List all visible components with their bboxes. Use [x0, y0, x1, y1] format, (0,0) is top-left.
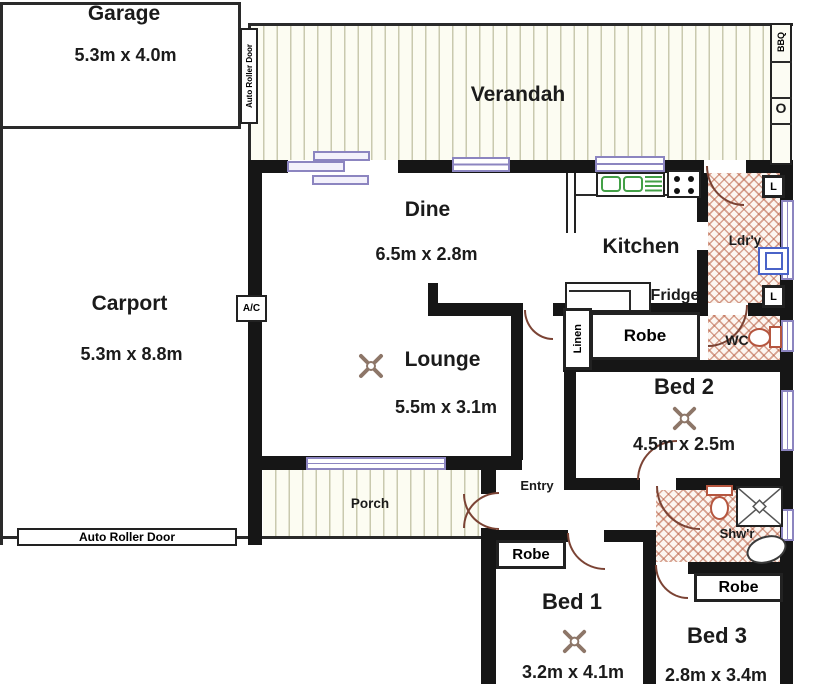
- linen-cupboard-bottom-label: L: [770, 291, 777, 303]
- verandah-name: Verandah: [448, 84, 588, 106]
- carport-dims: 5.3m x 8.8m: [68, 345, 195, 364]
- bath-toilet-bowl-icon: [710, 496, 729, 520]
- bed1-dims: 3.2m x 4.1m: [511, 663, 635, 682]
- bed2-dims: 4.5m x 2.5m: [622, 435, 746, 454]
- bed1-name: Bed 1: [528, 590, 616, 613]
- bed2-top-wall: [563, 360, 793, 372]
- sink-bowl-icon: [623, 176, 643, 192]
- wc-window: [781, 320, 794, 352]
- lounge-right-wall: [511, 310, 523, 460]
- robe-bed3-label: Robe: [719, 579, 759, 597]
- cooktop: [667, 170, 701, 198]
- laundry-name: Ldr'y: [718, 234, 772, 248]
- sink-bowl-icon: [601, 176, 621, 192]
- bed2-left-wall: [564, 366, 576, 478]
- lounge-dims: 5.5m x 3.1m: [383, 398, 509, 417]
- fridge-label: Fridge: [646, 288, 704, 305]
- auto-roller-door-vertical: Auto Roller Door: [240, 28, 258, 124]
- kitchen-bench-end-panel: [566, 173, 576, 233]
- bbq-label-cell: BBQ: [771, 25, 791, 59]
- bed2-bottom-wall-left: [564, 478, 640, 490]
- dine-dims: 6.5m x 2.8m: [363, 245, 490, 264]
- ac-unit-label: A/C: [243, 303, 260, 314]
- kitchen-name: Kitchen: [590, 236, 692, 258]
- wc-name: WC: [720, 333, 754, 348]
- entry-name: Entry: [512, 479, 562, 493]
- kitchen-window: [595, 156, 665, 172]
- cooktop-burner-icon: [674, 176, 680, 182]
- robe-bed1: Robe: [496, 540, 566, 569]
- garage-carport-divider: [0, 126, 241, 129]
- lounge-name: Lounge: [390, 349, 495, 371]
- laundry-tub-inner-icon: [765, 252, 783, 270]
- bed1-left-wall: [481, 528, 496, 684]
- garage-dims: 5.3m x 4.0m: [62, 46, 189, 65]
- sliding-door-panel: [313, 151, 370, 161]
- bed3-name: Bed 3: [673, 624, 761, 647]
- bbq-bench-divider: [770, 97, 792, 99]
- dine-lounge-wall: [428, 303, 523, 316]
- dine-window: [452, 157, 510, 172]
- verandah-top-line: [248, 23, 793, 26]
- linen-label: Linen: [572, 324, 584, 353]
- lounge-window: [306, 457, 446, 470]
- dine-name: Dine: [385, 199, 470, 221]
- left-boundary-line: [0, 2, 3, 545]
- fridge-recess-line: [569, 290, 629, 292]
- house-left-wall: [248, 160, 262, 545]
- bbq-label: BBQ: [776, 32, 786, 52]
- bed1-bed3-divider-wall: [643, 530, 656, 684]
- ac-unit: A/C: [236, 295, 267, 322]
- auto-roller-door-horizontal-label: Auto Roller Door: [79, 530, 175, 544]
- robe-bed3: Robe: [694, 573, 783, 602]
- robe-bed2: Robe: [590, 312, 700, 360]
- bath-toilet-tank-icon: [706, 485, 733, 496]
- ceiling-fan-icon: [670, 404, 699, 433]
- cooktop-burner-icon: [674, 188, 680, 194]
- sliding-door-panel: [312, 175, 369, 185]
- bed1-door-arc: [567, 533, 605, 570]
- cooktop-burner-icon: [688, 176, 694, 182]
- linen-cupboard-top-label: L: [770, 181, 777, 193]
- cooktop-burner-icon: [688, 188, 694, 194]
- sliding-door-panel: [287, 161, 345, 172]
- auto-roller-door-vertical-label: Auto Roller Door: [245, 44, 254, 108]
- bed3-door-arc: [655, 565, 688, 599]
- fridge-recess-line: [629, 290, 631, 310]
- bed3-dims: 2.8m x 3.4m: [654, 666, 778, 684]
- kitchen-laundry-wall-lower: [697, 250, 708, 316]
- bbq-sink-icon: O: [771, 101, 791, 116]
- robe-bed2-label: Robe: [624, 326, 667, 346]
- shower-name: Shw'r: [712, 527, 762, 541]
- shower-base-icon: [736, 486, 783, 527]
- porch-name: Porch: [335, 497, 405, 511]
- ceiling-fan-icon: [356, 351, 386, 381]
- hall-door-arc: [524, 310, 553, 340]
- bbq-bench-divider: [770, 61, 792, 63]
- entry-wall-upper: [481, 462, 496, 494]
- linen-tall-cupboard: Linen: [563, 308, 592, 370]
- bed2-window: [781, 390, 794, 451]
- garage-name: Garage: [49, 3, 199, 25]
- auto-roller-door-horizontal: Auto Roller Door: [17, 528, 237, 546]
- bed2-name: Bed 2: [640, 375, 728, 398]
- sink-drainer-icon: [645, 176, 662, 192]
- bbq-bench-divider: [770, 123, 792, 125]
- linen-cupboard-bottom: L: [762, 285, 785, 308]
- porch-bottom-line: [251, 536, 481, 539]
- linen-cupboard-top: L: [762, 175, 785, 198]
- shower-diagonals-icon: [738, 488, 781, 525]
- carport-name: Carport: [42, 293, 217, 315]
- ceiling-fan-icon: [560, 627, 589, 656]
- robe-bed1-label: Robe: [512, 546, 550, 563]
- floor-plan: Auto Roller Door Auto Roller Door A/C BB…: [0, 0, 828, 684]
